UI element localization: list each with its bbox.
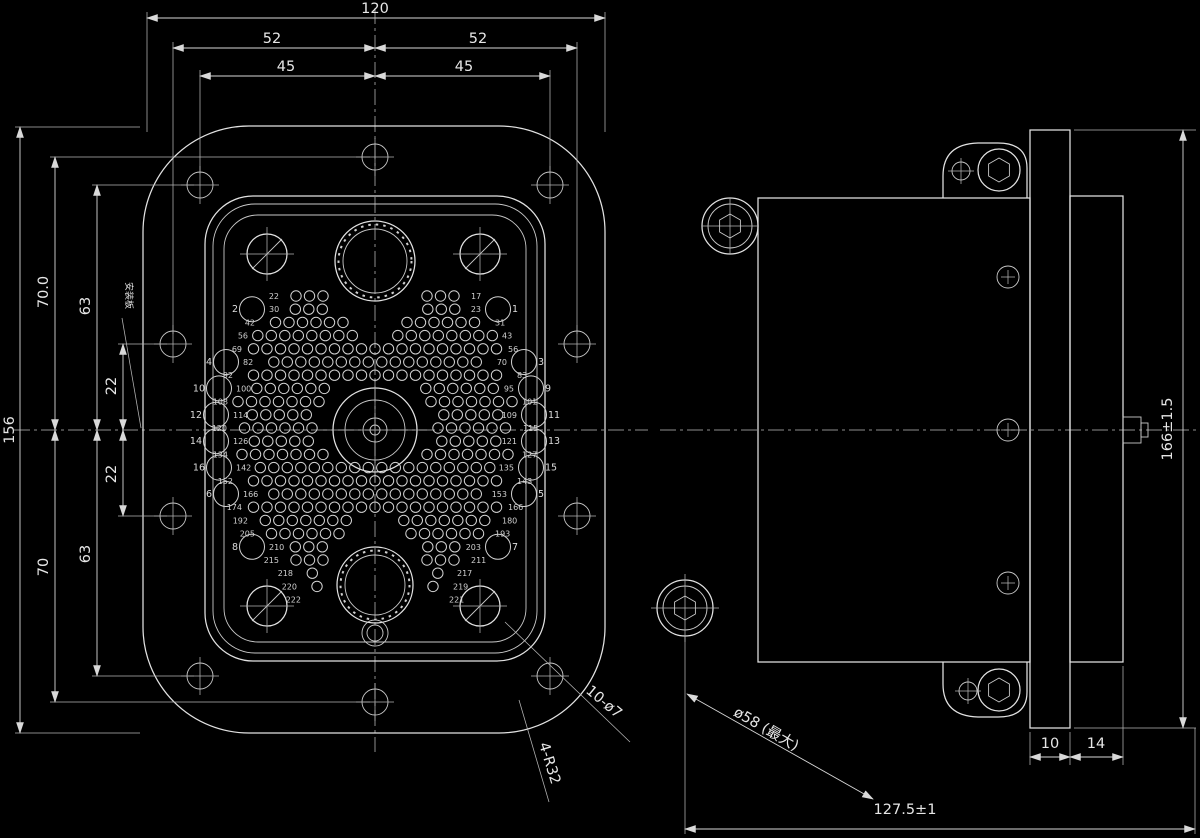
pin-label: 83 bbox=[517, 371, 527, 380]
pin-label: 166 bbox=[243, 490, 258, 499]
pin-label: 42 bbox=[245, 318, 255, 327]
pin-label: 17 bbox=[471, 292, 481, 301]
pin-label: 221 bbox=[449, 596, 464, 605]
crossed-contact bbox=[453, 227, 507, 281]
pin-label: 10 bbox=[193, 383, 205, 394]
pin-label: 222 bbox=[286, 596, 301, 605]
pin-label: 166 bbox=[508, 503, 523, 512]
pin-label: 135 bbox=[499, 464, 514, 473]
pin-label: 218 bbox=[278, 569, 293, 578]
dim-text-63-top: 63 bbox=[78, 297, 94, 315]
pin-label: 15 bbox=[545, 463, 557, 474]
pin-label: 14 bbox=[190, 436, 202, 447]
center-contact bbox=[323, 378, 427, 482]
pin-label: 13 bbox=[548, 436, 560, 447]
pin-label: 142 bbox=[236, 464, 251, 473]
pin-label: 109 bbox=[502, 411, 517, 420]
panel-note: 安装板 bbox=[123, 282, 135, 309]
top-left-lug bbox=[702, 198, 758, 254]
pin-label: 7 bbox=[512, 542, 518, 553]
screw-head bbox=[997, 572, 1019, 594]
pin-label: 92 bbox=[223, 371, 233, 380]
hex-bolt-head bbox=[989, 158, 1010, 182]
pin-label: 210 bbox=[269, 543, 284, 552]
mounting-hole bbox=[531, 657, 569, 695]
pin-label: 8 bbox=[232, 542, 238, 553]
pin-label: 95 bbox=[504, 384, 514, 393]
screw-head bbox=[997, 266, 1019, 288]
dim-text-52-right: 52 bbox=[469, 31, 487, 47]
dim-text-63-bot: 63 bbox=[78, 545, 94, 563]
front-view: 2217213023423156436956438270928310910095… bbox=[2, 1, 648, 802]
dim-text-45-right: 45 bbox=[455, 59, 473, 75]
pin-label: 31 bbox=[495, 318, 505, 327]
pin-label: 3 bbox=[538, 357, 544, 368]
pin-label: 82 bbox=[243, 358, 253, 367]
pin-label: 1 bbox=[512, 304, 518, 315]
dim-text-14: 14 bbox=[1087, 736, 1105, 752]
dim-text-156: 156 bbox=[2, 416, 18, 444]
bottom-left-lug bbox=[651, 574, 719, 642]
flange-plate bbox=[1030, 130, 1070, 728]
dim-text-127: 127.5±1 bbox=[874, 802, 937, 818]
dim-text-70-bot: 70 bbox=[36, 558, 52, 576]
pin-label: 43 bbox=[502, 332, 512, 341]
dim-text-45-left: 45 bbox=[277, 59, 295, 75]
dim-text-166: 166±1.5 bbox=[1160, 398, 1176, 461]
pin-label: 11 bbox=[548, 410, 560, 421]
pin-label: 23 bbox=[471, 305, 481, 314]
dim-text-22-top: 22 bbox=[104, 377, 120, 395]
holes-leader bbox=[505, 622, 630, 742]
pin-label: 4 bbox=[206, 357, 212, 368]
top-right-lug bbox=[943, 143, 1027, 198]
pin-label: 100 bbox=[236, 384, 251, 393]
dim-text-120: 120 bbox=[361, 1, 389, 17]
mounting-hole bbox=[558, 497, 596, 535]
panel-note-leader bbox=[122, 318, 141, 428]
dim-text-10: 10 bbox=[1041, 736, 1059, 752]
pin-label: 203 bbox=[466, 543, 481, 552]
pin-label: 30 bbox=[269, 305, 279, 314]
radius-callout: 4-R32 bbox=[535, 740, 563, 786]
pin-label: 6 bbox=[206, 489, 212, 500]
pin-label: 211 bbox=[471, 556, 486, 565]
bottom-right-lug bbox=[943, 662, 1027, 717]
rear-shell bbox=[1070, 196, 1123, 662]
pin-label: 56 bbox=[238, 332, 248, 341]
pin-label: 219 bbox=[453, 582, 468, 591]
hex-bolt-head bbox=[989, 678, 1010, 702]
dim-text-70-top: 70.0 bbox=[36, 276, 52, 308]
pin-label: 192 bbox=[233, 516, 248, 525]
pin-label: 153 bbox=[492, 490, 507, 499]
dim-text-22-bot: 22 bbox=[104, 465, 120, 483]
pin-label: 217 bbox=[457, 569, 472, 578]
pin-label: 16 bbox=[193, 463, 205, 474]
pin-label: 126 bbox=[233, 437, 248, 446]
pin-label: 12 bbox=[190, 410, 202, 421]
pin-label: 121 bbox=[502, 437, 517, 446]
pin-label: 114 bbox=[233, 411, 248, 420]
pin-label: 70 bbox=[497, 358, 507, 367]
pin-label: 2 bbox=[232, 304, 238, 315]
pin-label: 22 bbox=[269, 292, 279, 301]
drawing-canvas: 2217213023423156436956438270928310910095… bbox=[0, 0, 1200, 838]
pin-label: 9 bbox=[545, 383, 551, 394]
pin-label: 180 bbox=[502, 516, 517, 525]
dim-text-58: ø58 (最大) bbox=[731, 704, 802, 755]
pin-label: 5 bbox=[538, 489, 544, 500]
dim-text-52-left: 52 bbox=[263, 31, 281, 47]
connector-technical-drawing: 2217213023423156436956438270928310910095… bbox=[0, 0, 1200, 838]
pin-label: 174 bbox=[227, 503, 242, 512]
crossed-contact bbox=[240, 227, 294, 281]
pin-label: 215 bbox=[264, 556, 279, 565]
pin-label: 220 bbox=[282, 582, 297, 591]
